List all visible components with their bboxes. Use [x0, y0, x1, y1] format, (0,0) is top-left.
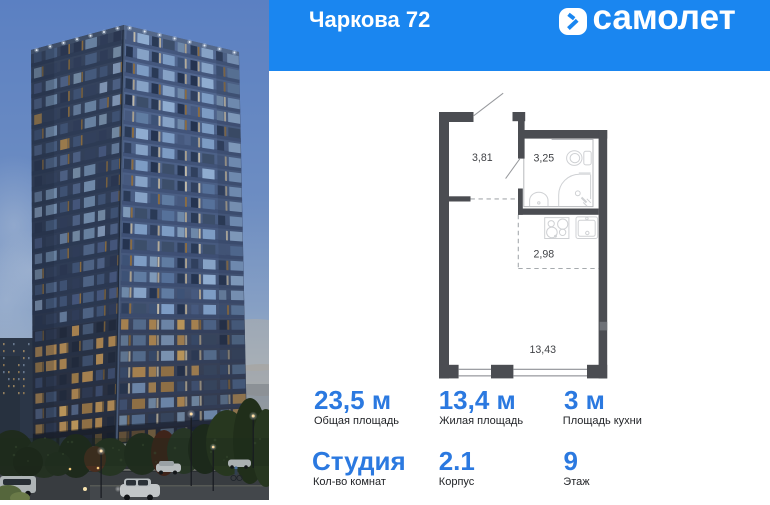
svg-text:2,98: 2,98 — [534, 249, 555, 261]
svg-text:3,25: 3,25 — [534, 153, 555, 165]
svg-text:13,43: 13,43 — [530, 344, 557, 356]
svg-text:3,81: 3,81 — [472, 152, 493, 164]
